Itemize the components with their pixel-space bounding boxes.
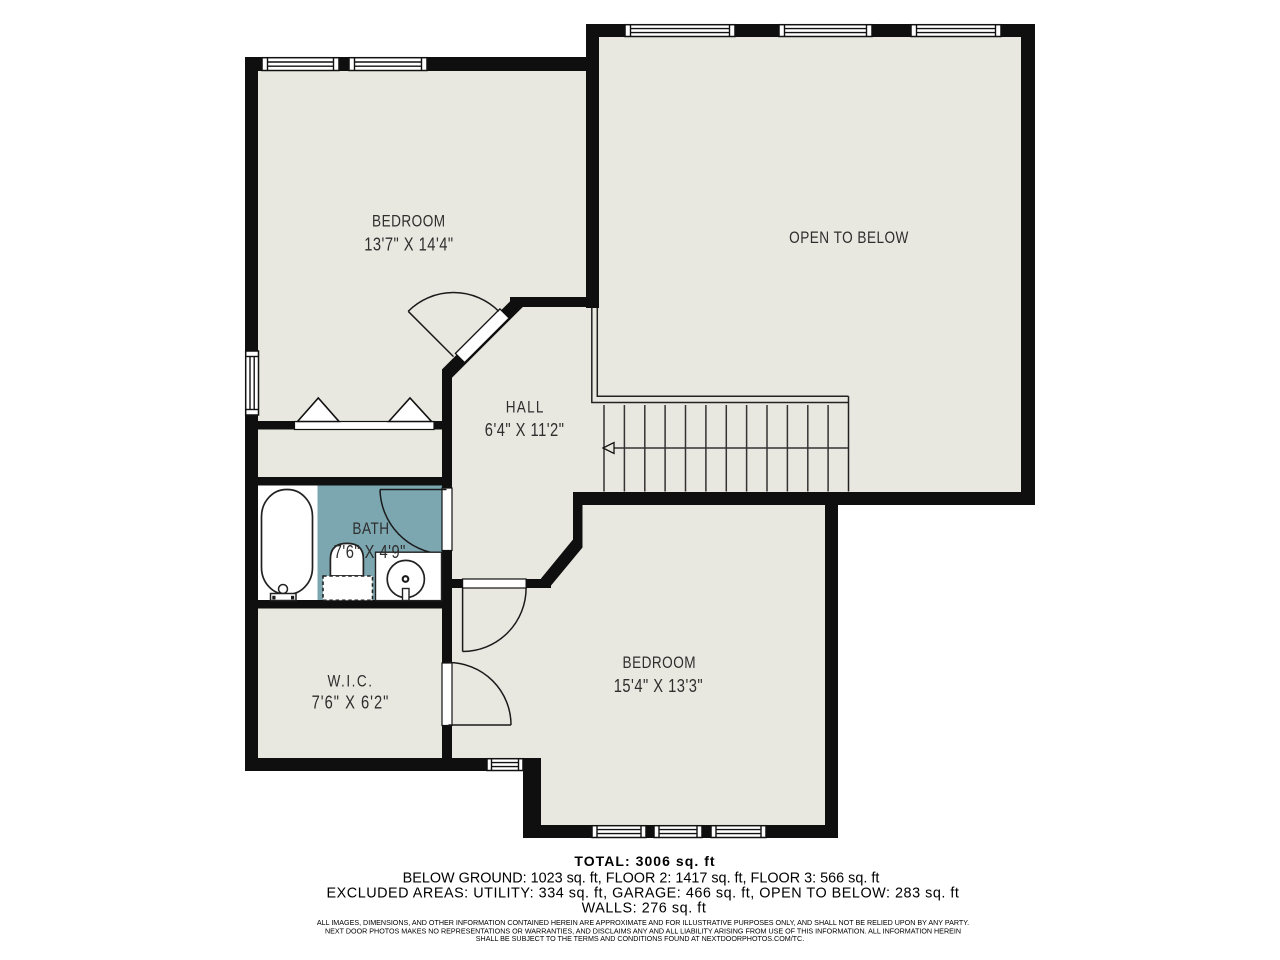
svg-text:7'6" X 6'2": 7'6" X 6'2"	[312, 692, 390, 713]
svg-text:WALLS: 276 sq. ft: WALLS: 276 sq. ft	[582, 901, 707, 917]
svg-text:ALL IMAGES, DIMENSIONS, AND OT: ALL IMAGES, DIMENSIONS, AND OTHER INFORM…	[317, 919, 969, 927]
svg-text:BELOW GROUND: 1023 sq. ft, FLO: BELOW GROUND: 1023 sq. ft, FLOOR 2: 1417…	[403, 870, 880, 886]
svg-text:13'7" X 14'4": 13'7" X 14'4"	[364, 234, 453, 255]
svg-text:7'6" X 4'9": 7'6" X 4'9"	[334, 541, 406, 562]
svg-text:EXCLUDED AREAS: UTILITY: 334 s: EXCLUDED AREAS: UTILITY: 334 sq. ft, GAR…	[327, 886, 960, 902]
svg-text:BATH: BATH	[352, 520, 389, 539]
svg-text:OPEN TO BELOW: OPEN TO BELOW	[789, 228, 909, 247]
svg-text:TOTAL: 3006 sq. ft: TOTAL: 3006 sq. ft	[574, 853, 715, 869]
svg-text:15'4" X 13'3": 15'4" X 13'3"	[614, 675, 703, 696]
svg-text:6'4" X 11'2": 6'4" X 11'2"	[485, 420, 565, 441]
svg-text:SHALL BE SUBJECT TO THE TERMS: SHALL BE SUBJECT TO THE TERMS AND CONDIT…	[476, 935, 804, 943]
svg-text:NEXT DOOR PHOTOS MAKES NO REPR: NEXT DOOR PHOTOS MAKES NO REPRESENTATION…	[325, 927, 961, 935]
svg-text:BEDROOM: BEDROOM	[623, 654, 697, 673]
svg-text:W.I.C.: W.I.C.	[327, 672, 373, 691]
svg-text:HALL: HALL	[506, 398, 545, 417]
svg-text:BEDROOM: BEDROOM	[372, 212, 446, 231]
